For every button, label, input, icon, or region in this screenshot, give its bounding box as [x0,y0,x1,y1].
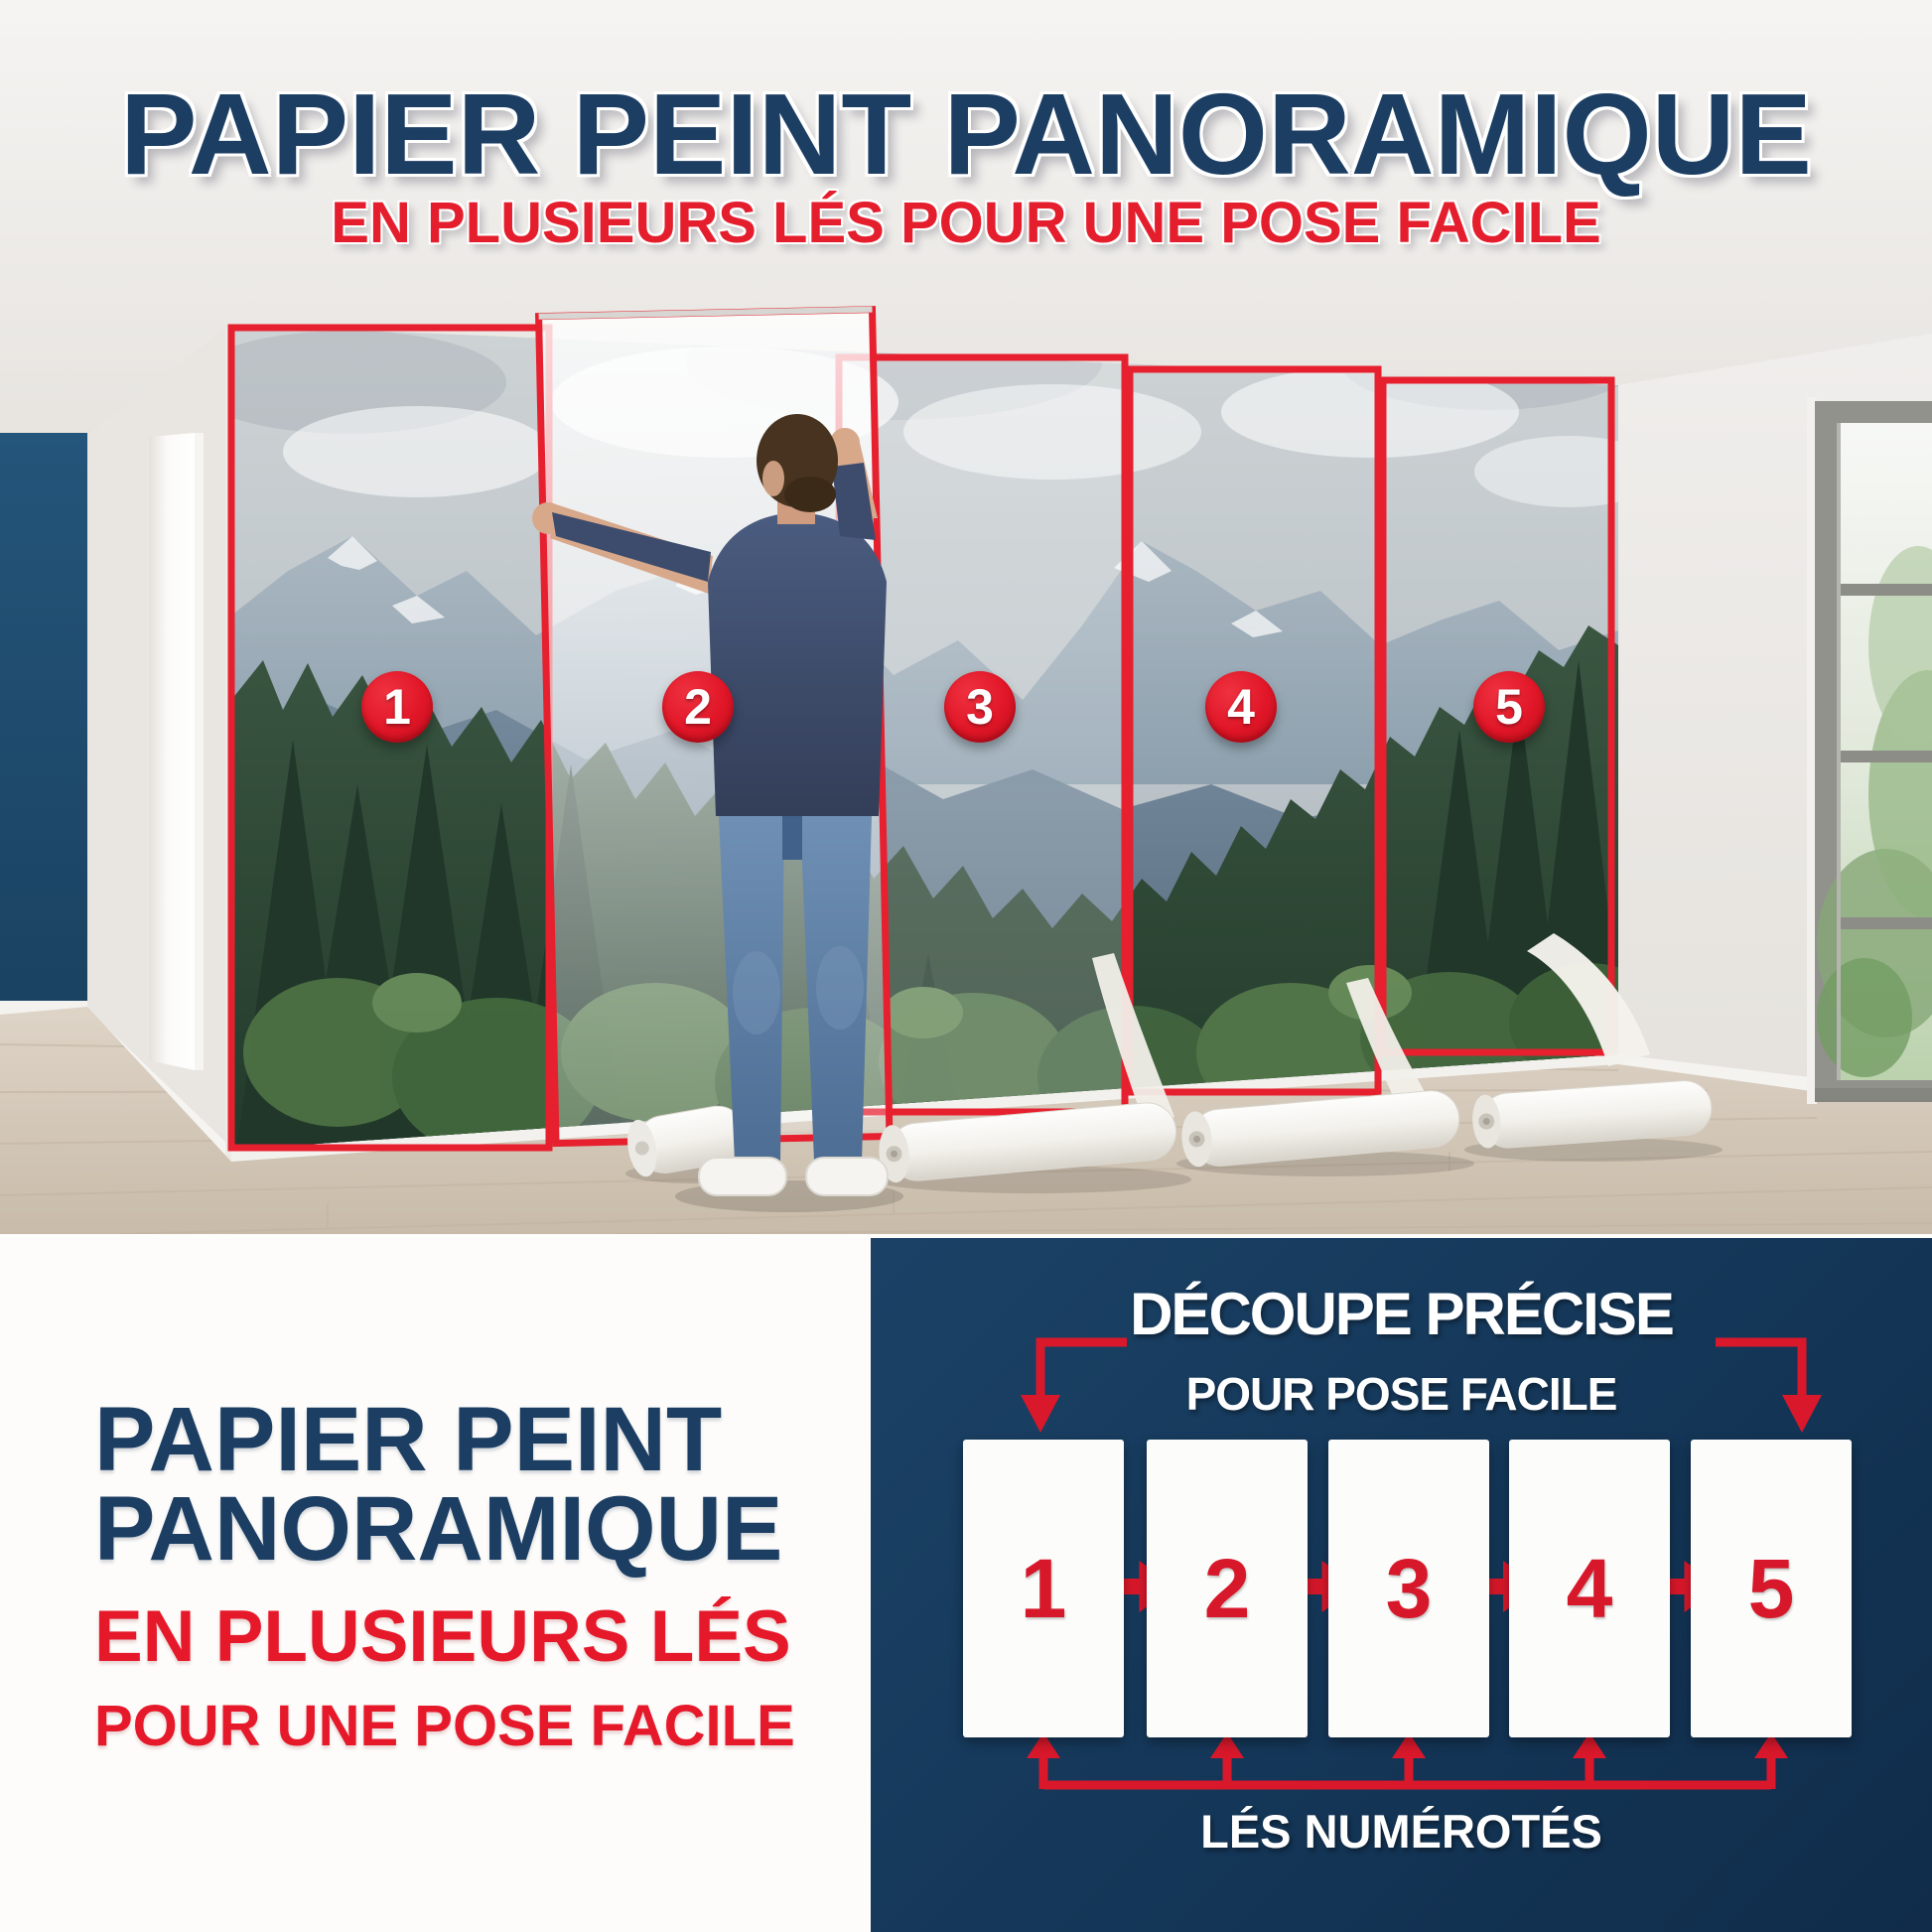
strip-number: 2 [684,682,712,732]
tshirt [708,512,887,816]
strip-number: 5 [1495,682,1523,732]
diagram-strip-4: 4 [1509,1440,1670,1737]
diagram-strip-number: 1 [1021,1547,1067,1630]
product-title-line2: PANORAMIQUE [94,1483,782,1575]
product-text-panel: PAPIER PEINT PANORAMIQUE EN PLUSIEURS LÉ… [0,1238,871,1932]
arrow-down-right [1716,1342,1802,1395]
arrow-down-icon [1782,1395,1822,1433]
diagram-strip-number: 3 [1386,1547,1433,1630]
page-title: PAPIER PEINT PANORAMIQUE [0,76,1932,192]
window-mullion [1837,917,1932,929]
diagram-strip-1: 1 [963,1440,1124,1737]
window [1807,397,1932,1104]
strip-number-badge-5: 5 [1473,671,1545,743]
strip-number-badge-2: 2 [662,671,734,743]
page-subtitle: EN PLUSIEURS LÉS POUR UNE POSE FACILE [0,195,1932,252]
diagram-panel: DÉCOUPE PRÉCISE POUR POSE FACILE [871,1238,1932,1932]
arrow-down-left [1040,1342,1127,1395]
diagram-strip-2: 2 [1147,1440,1308,1737]
doorway [149,433,195,1070]
window-mullion [1837,751,1932,762]
diagram-strip-number: 4 [1567,1547,1613,1630]
strip-number: 3 [966,682,994,732]
product-title-line1: PAPIER PEINT [94,1394,722,1485]
arrow-down-icon [1021,1395,1060,1433]
diagram-strip-number: 5 [1748,1547,1795,1630]
shoe [806,1158,888,1195]
infographic-page: 1 2 3 4 5 PAPIER PEINT PANORAMIQUE EN PL… [0,0,1932,1932]
product-subtitle-line2: POUR UNE POSE FACILE [94,1698,795,1755]
strip-number-badge-1: 1 [361,671,433,743]
strip-number: 4 [1227,682,1255,732]
strip-number: 1 [383,682,411,732]
diagram-strip-5: 5 [1691,1440,1852,1737]
product-subtitle-line1: EN PLUSIEURS LÉS [94,1600,791,1673]
window-mullion [1837,584,1932,596]
diagram-caption: LÉS NUMÉROTÉS [871,1808,1932,1855]
strip-number-badge-4: 4 [1205,671,1277,743]
accent-wall [0,433,87,1001]
diagram-strip-3: 3 [1328,1440,1489,1737]
diagram-strip-number: 2 [1204,1547,1251,1630]
strip-number-badge-3: 3 [944,671,1016,743]
numbered-strips-bracket [1043,1758,1771,1789]
shoe [699,1158,786,1195]
